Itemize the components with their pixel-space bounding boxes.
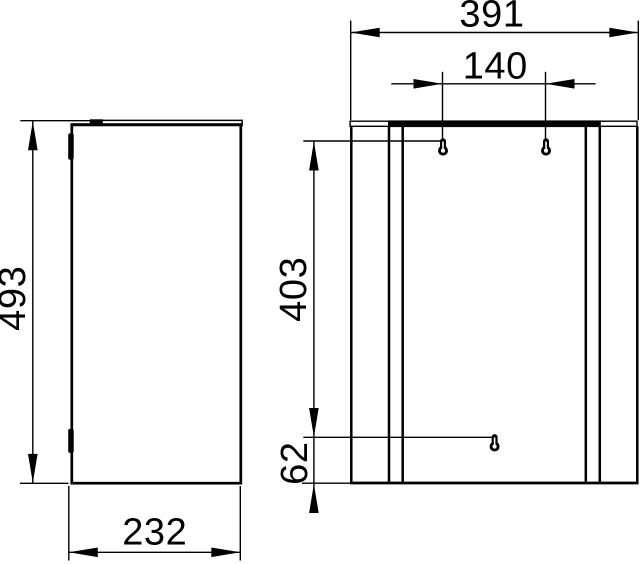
- svg-text:232: 232: [122, 512, 187, 554]
- svg-text:140: 140: [463, 45, 528, 87]
- svg-text:62: 62: [274, 441, 316, 484]
- svg-text:391: 391: [459, 0, 524, 35]
- svg-text:403: 403: [273, 257, 315, 322]
- svg-text:493: 493: [0, 266, 34, 331]
